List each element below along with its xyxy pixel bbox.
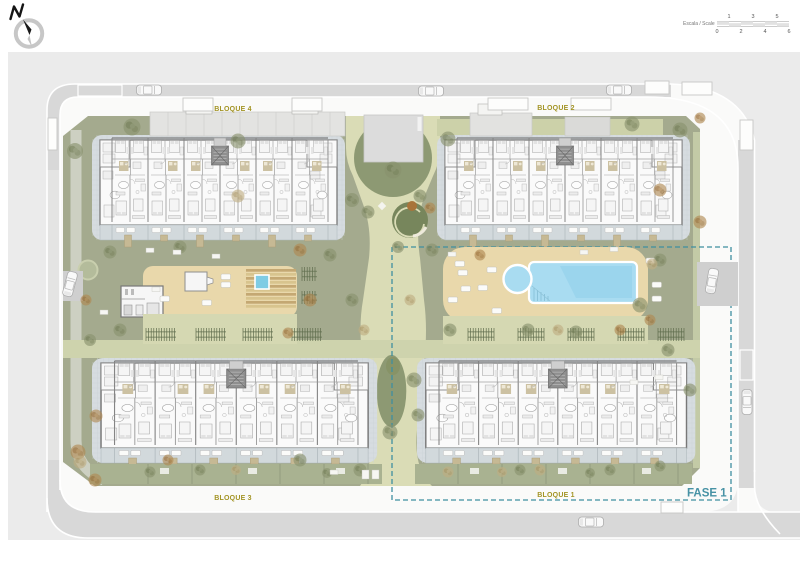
svg-text:0: 0 [715, 29, 718, 35]
svg-text:3: 3 [751, 14, 754, 20]
svg-text:BLOQUE 3: BLOQUE 3 [214, 495, 251, 502]
svg-text:Escala / Scale: Escala / Scale [683, 21, 715, 27]
svg-text:BLOQUE 1: BLOQUE 1 [537, 492, 574, 499]
svg-text:BLOQUE 4: BLOQUE 4 [214, 106, 251, 113]
svg-text:BLOQUE 2: BLOQUE 2 [537, 105, 574, 112]
svg-text:FASE 1: FASE 1 [687, 488, 727, 500]
svg-text:2: 2 [739, 29, 742, 35]
svg-text:4: 4 [763, 29, 766, 35]
svg-text:5: 5 [775, 14, 778, 20]
svg-text:1: 1 [727, 14, 730, 20]
svg-text:6: 6 [787, 29, 790, 35]
